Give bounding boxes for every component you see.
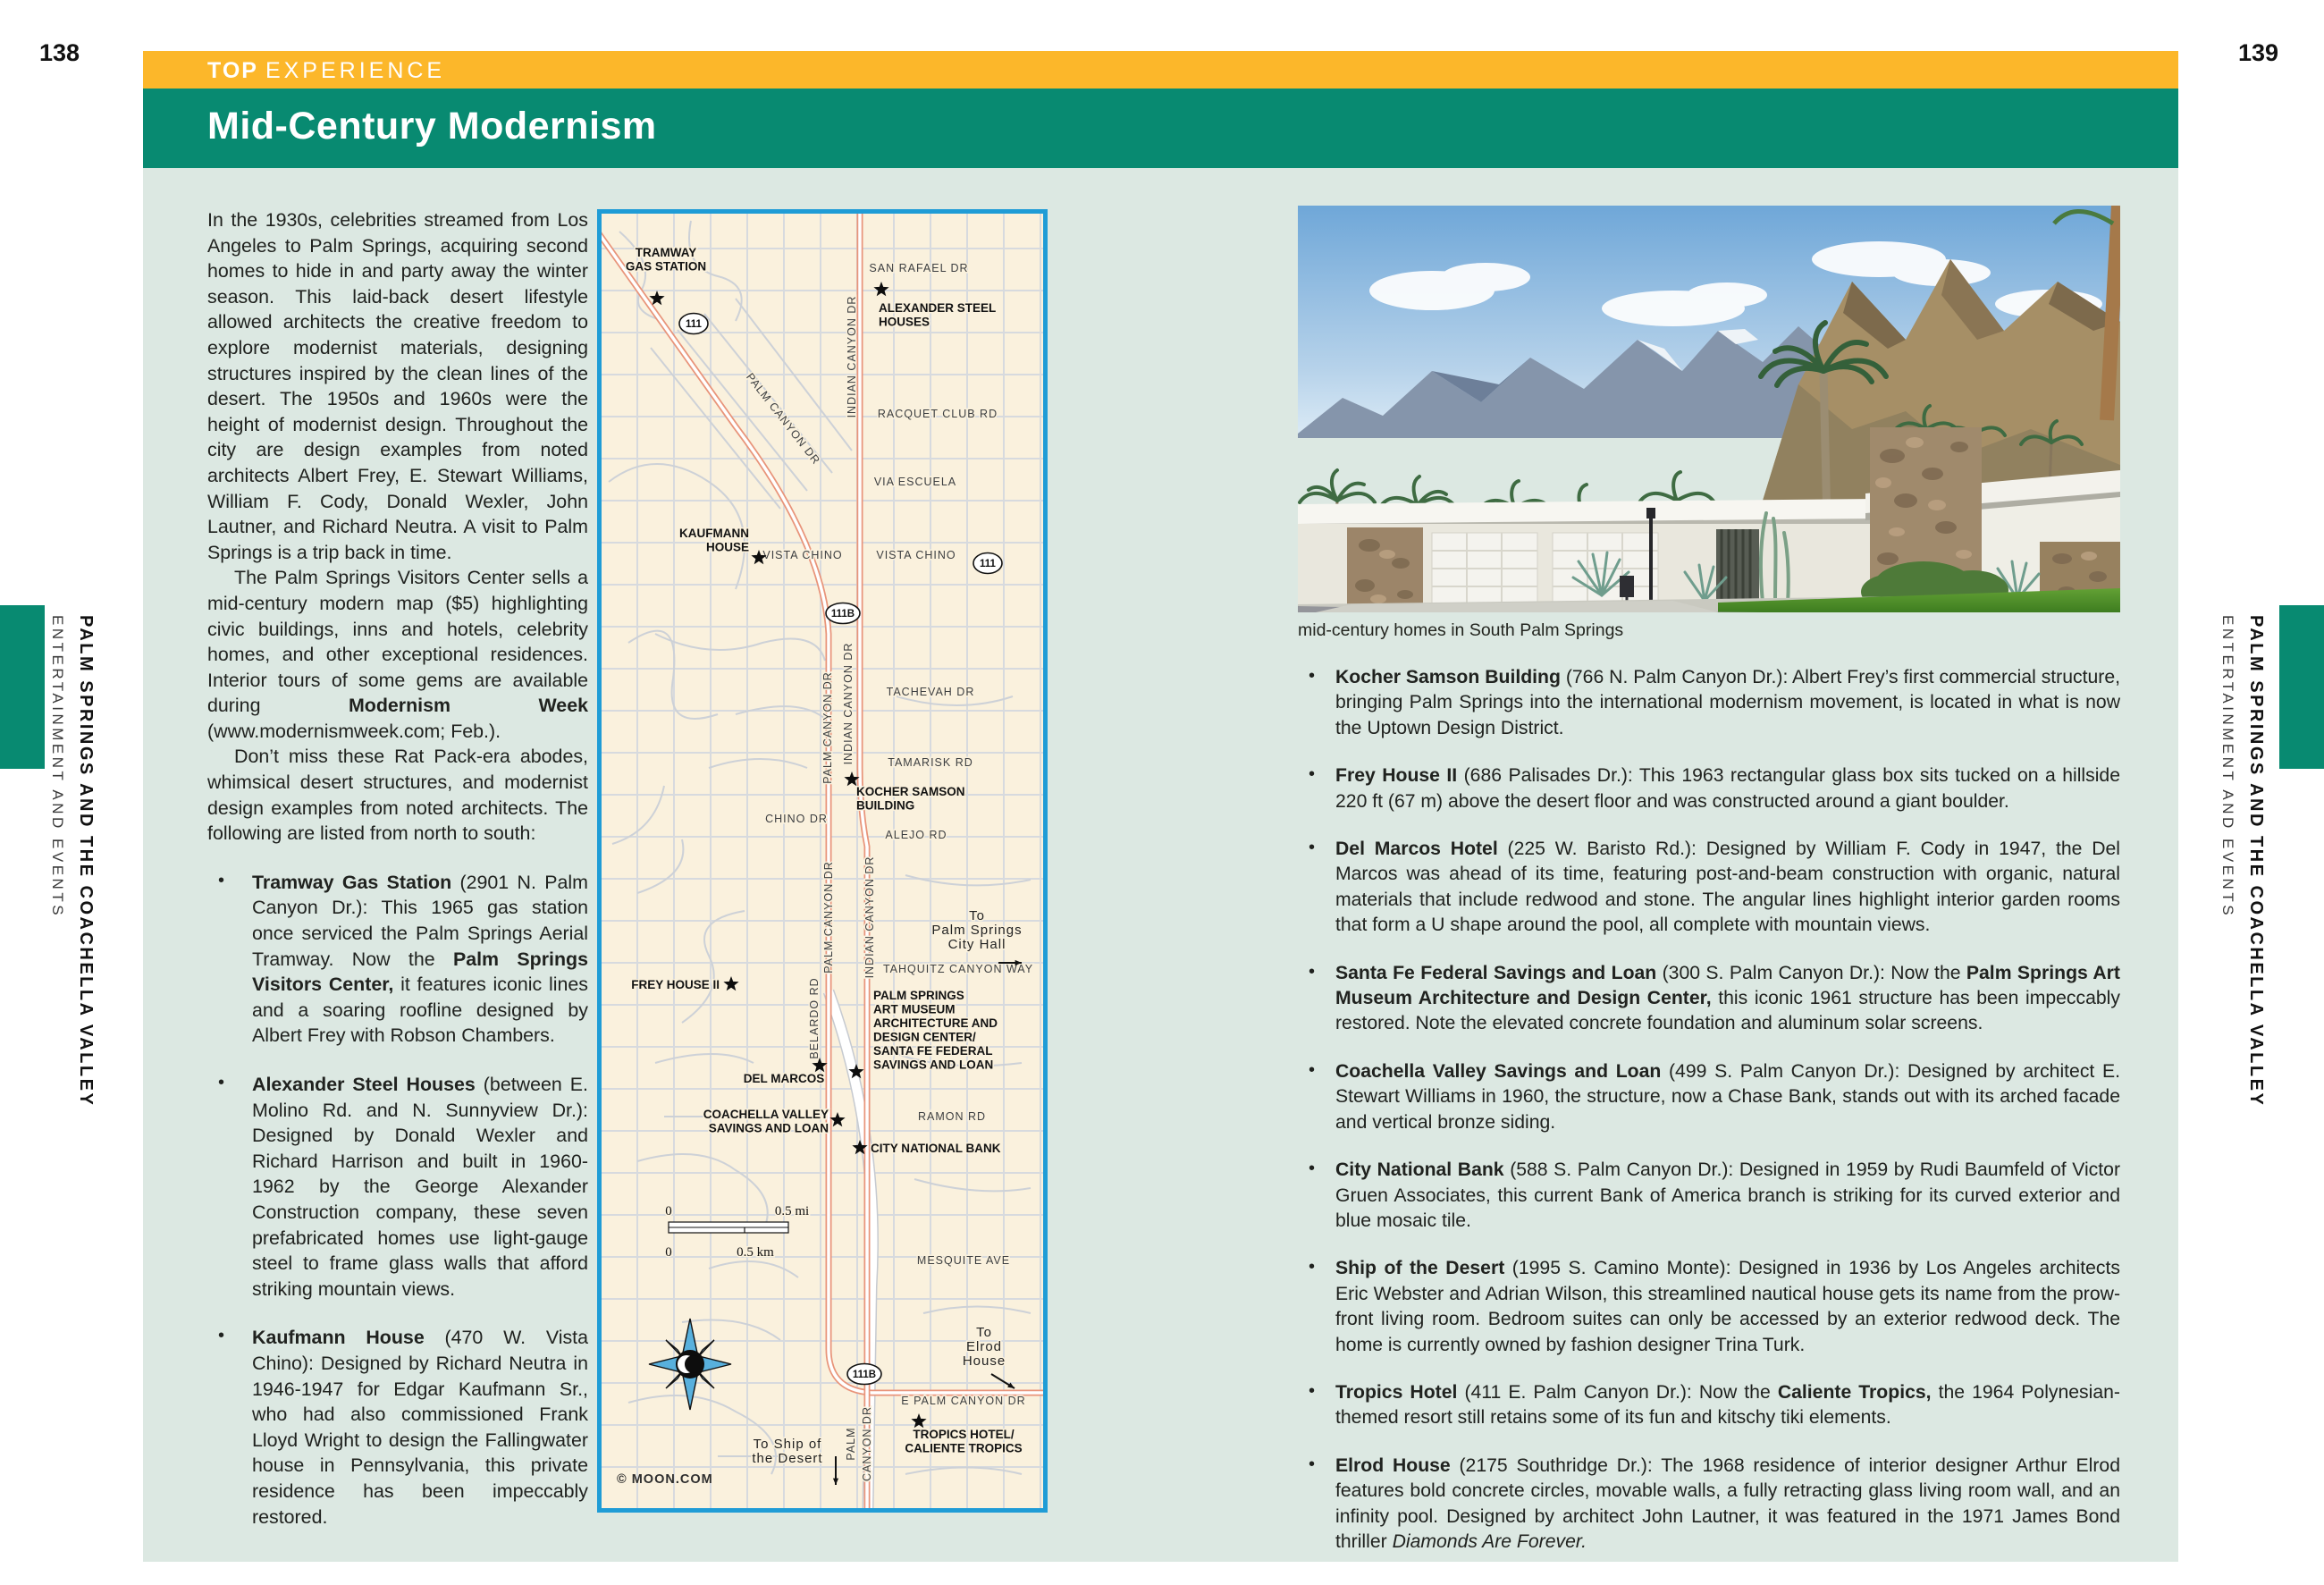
svg-text:HOUSE: HOUSE	[706, 541, 749, 554]
svg-text:GAS STATION: GAS STATION	[626, 260, 706, 274]
intro-paragraph: In the 1930s, celebrities streamed from …	[207, 207, 588, 565]
svg-text:House: House	[963, 1353, 1006, 1369]
list-item-text: Ship of the Desert (1995 S. Camino Monte…	[1335, 1256, 2120, 1358]
left-text-column: In the 1930s, celebrities streamed from …	[207, 207, 588, 1553]
poi-star-icon	[873, 282, 888, 296]
bullet-icon: •	[218, 868, 224, 894]
bullet-icon: •	[1309, 1378, 1315, 1404]
scale-bar	[669, 1222, 788, 1233]
svg-text:TAHQUITZ CANYON WAY: TAHQUITZ CANYON WAY	[883, 963, 1033, 975]
svg-text:DESIGN CENTER/: DESIGN CENTER/	[873, 1031, 976, 1044]
photo-illustration	[1298, 206, 2120, 612]
svg-text:INDIAN CANYON DR: INDIAN CANYON DR	[846, 296, 858, 418]
list-item-text: Tramway Gas Station (2901 N. Palm Canyon…	[252, 870, 588, 1049]
list-item-text: Kocher Samson Building (766 N. Palm Cany…	[1335, 665, 2120, 741]
right-tab-section-label: ENTERTAINMENT AND EVENTS	[2219, 615, 2236, 918]
list-item-text: Del Marcos Hotel (225 W. Baristo Rd.): D…	[1335, 837, 2120, 939]
left-bullet-list: •Tramway Gas Station (2901 N. Palm Canyo…	[207, 870, 588, 1530]
svg-text:CHINO DR: CHINO DR	[765, 813, 828, 825]
list-item: •Tropics Hotel (411 E. Palm Canyon Dr.):…	[1298, 1380, 2120, 1431]
map-canvas: 00.5 mi00.5 km SAN RAFAEL DRRACQUET CLUB…	[602, 214, 1043, 1508]
svg-text:CITY NATIONAL BANK: CITY NATIONAL BANK	[871, 1142, 1001, 1155]
svg-text:BELARDO RD: BELARDO RD	[808, 977, 821, 1058]
list-item: •Tramway Gas Station (2901 N. Palm Canyo…	[207, 870, 588, 1049]
poi-labels: TRAMWAYGAS STATIONALEXANDER STEELHOUSESK…	[626, 246, 1023, 1455]
svg-text:DEL MARCOS: DEL MARCOS	[744, 1072, 825, 1085]
kicker-bold: TOP	[207, 58, 258, 83]
bullet-icon: •	[1309, 835, 1315, 860]
svg-text:PALM CANYON DR: PALM CANYON DR	[822, 861, 835, 974]
bullet-icon: •	[1309, 1156, 1315, 1181]
photo-caption: mid-century homes in South Palm Springs	[1298, 620, 1623, 641]
list-item-text: City National Bank (588 S. Palm Canyon D…	[1335, 1158, 2120, 1234]
svg-text:ALEJO RD: ALEJO RD	[885, 829, 947, 841]
arrow-icon	[833, 1479, 838, 1485]
svg-text:Palm Springs: Palm Springs	[931, 923, 1022, 938]
svg-text:TRAMWAY: TRAMWAY	[636, 246, 697, 259]
svg-text:INDIAN CANYON DR: INDIAN CANYON DR	[863, 856, 876, 979]
page-number-left: 138	[39, 39, 80, 67]
svg-text:0: 0	[665, 1245, 672, 1260]
svg-text:SANTA FE FEDERAL: SANTA FE FEDERAL	[873, 1044, 993, 1058]
left-tab-section-label: ENTERTAINMENT AND EVENTS	[48, 615, 66, 918]
street-labels: SAN RAFAEL DRRACQUET CLUB RDVIA ESCUELAV…	[744, 262, 1033, 1481]
left-tab-marker	[0, 605, 45, 769]
svg-text:SAVINGS AND LOAN: SAVINGS AND LOAN	[873, 1058, 993, 1072]
svg-text:To: To	[969, 908, 985, 923]
svg-text:To Ship of: To Ship of	[754, 1437, 822, 1452]
svg-text:ALEXANDER STEEL: ALEXANDER STEEL	[879, 301, 996, 315]
svg-text:SAN RAFAEL DR: SAN RAFAEL DR	[869, 262, 968, 274]
poi-star-icon	[723, 976, 738, 991]
page-number-right: 139	[2238, 39, 2278, 67]
bullet-icon: •	[1309, 762, 1315, 787]
svg-text:City Hall: City Hall	[948, 937, 1006, 952]
poi-star-icon	[911, 1413, 926, 1428]
svg-text:0: 0	[665, 1204, 672, 1218]
svg-text:RACQUET CLUB RD: RACQUET CLUB RD	[878, 408, 998, 420]
svg-text:SAVINGS AND LOAN: SAVINGS AND LOAN	[709, 1122, 829, 1135]
top-experience-band: TOPEXPERIENCE	[143, 51, 2178, 89]
svg-text:PALM: PALM	[845, 1427, 857, 1460]
content-area: In the 1930s, celebrities streamed from …	[143, 168, 2178, 1562]
svg-text:0.5 km: 0.5 km	[737, 1245, 774, 1260]
svg-text:TROPICS HOTEL/: TROPICS HOTEL/	[913, 1428, 1015, 1441]
bullet-icon: •	[1309, 1254, 1315, 1279]
svg-text:Elrod: Elrod	[966, 1339, 1002, 1354]
right-text-column: •Kocher Samson Building (766 N. Palm Can…	[1298, 665, 2120, 1577]
svg-text:111: 111	[980, 559, 997, 569]
svg-text:CANYON DR: CANYON DR	[861, 1406, 873, 1481]
svg-text:VISTA CHINO: VISTA CHINO	[876, 549, 956, 561]
bullet-icon: •	[1309, 663, 1315, 688]
svg-text:INDIAN CANYON DR: INDIAN CANYON DR	[842, 643, 855, 765]
list-item: •Elrod House (2175 Southridge Dr.): The …	[1298, 1454, 2120, 1555]
svg-text:MESQUITE AVE: MESQUITE AVE	[917, 1254, 1010, 1267]
map-copyright: © MOON.COM	[617, 1472, 713, 1487]
bullet-icon: •	[1309, 959, 1315, 984]
svg-text:VIA ESCUELA: VIA ESCUELA	[874, 476, 956, 488]
photo-midcentury-homes	[1298, 206, 2120, 612]
list-item-text: Alexander Steel Houses (between E. Molin…	[252, 1072, 588, 1302]
list-item-text: Santa Fe Federal Savings and Loan (300 S…	[1335, 961, 2120, 1037]
bullet-icon: •	[1309, 1058, 1315, 1083]
svg-text:E PALM CANYON DR: E PALM CANYON DR	[901, 1395, 1025, 1407]
list-item: •Coachella Valley Savings and Loan (499 …	[1298, 1059, 2120, 1135]
svg-text:the Desert: the Desert	[752, 1451, 822, 1466]
bullet-icon: •	[218, 1323, 224, 1349]
kicker: TOPEXPERIENCE	[207, 58, 445, 84]
palm-springs-map: 00.5 mi00.5 km SAN RAFAEL DRRACQUET CLUB…	[597, 209, 1048, 1513]
svg-text:PALM SPRINGS: PALM SPRINGS	[873, 989, 964, 1002]
intro-paragraph: The Palm Springs Visitors Center sells a…	[207, 565, 588, 744]
svg-text:PALM CANYON DR: PALM CANYON DR	[821, 671, 834, 784]
svg-text:CALIENTE TROPICS: CALIENTE TROPICS	[905, 1442, 1022, 1455]
title-band: Mid-Century Modernism	[143, 89, 2178, 168]
svg-text:111B: 111B	[853, 1370, 876, 1380]
svg-text:FREY HOUSE II: FREY HOUSE II	[631, 978, 720, 991]
list-item: •Ship of the Desert (1995 S. Camino Mont…	[1298, 1256, 2120, 1358]
bullet-icon: •	[218, 1070, 224, 1096]
poi-star-icon	[829, 1112, 845, 1126]
svg-text:BUILDING: BUILDING	[856, 799, 914, 813]
svg-text:KAUFMANN: KAUFMANN	[679, 527, 749, 540]
right-tab-chapter-label: PALM SPRINGS AND THE COACHELLA VALLEY	[2245, 615, 2266, 1107]
svg-text:ART MUSEUM: ART MUSEUM	[873, 1003, 956, 1016]
kicker-rest: EXPERIENCE	[265, 58, 445, 83]
svg-text:111B: 111B	[831, 609, 855, 620]
list-item-text: Coachella Valley Savings and Loan (499 S…	[1335, 1059, 2120, 1135]
list-item: •Kocher Samson Building (766 N. Palm Can…	[1298, 665, 2120, 741]
svg-text:KOCHER SAMSON: KOCHER SAMSON	[856, 785, 965, 798]
svg-text:111: 111	[686, 319, 703, 330]
list-item-text: Kaufmann House (470 W. Vista Chino): Des…	[252, 1325, 588, 1530]
list-item: •Del Marcos Hotel (225 W. Baristo Rd.): …	[1298, 837, 2120, 939]
svg-text:TAMARISK RD: TAMARISK RD	[888, 756, 973, 769]
list-item: •Kaufmann House (470 W. Vista Chino): De…	[207, 1325, 588, 1530]
page-title: Mid-Century Modernism	[207, 105, 657, 148]
list-item-text: Tropics Hotel (411 E. Palm Canyon Dr.): …	[1335, 1380, 2120, 1431]
list-item: •Santa Fe Federal Savings and Loan (300 …	[1298, 961, 2120, 1037]
intro-paragraph: Don’t miss these Rat Pack-era abodes, wh…	[207, 744, 588, 846]
list-item: •Alexander Steel Houses (between E. Moli…	[207, 1072, 588, 1302]
list-item-text: Elrod House (2175 Southridge Dr.): The 1…	[1335, 1454, 2120, 1555]
list-item-text: Frey House II (686 Palisades Dr.): This …	[1335, 763, 2120, 814]
svg-text:RAMON RD: RAMON RD	[918, 1110, 986, 1123]
svg-text:ARCHITECTURE AND: ARCHITECTURE AND	[873, 1016, 998, 1030]
list-item: •Frey House II (686 Palisades Dr.): This…	[1298, 763, 2120, 814]
svg-text:VISTA CHINO: VISTA CHINO	[762, 549, 842, 561]
list-item: •City National Bank (588 S. Palm Canyon …	[1298, 1158, 2120, 1234]
svg-text:0.5 mi: 0.5 mi	[775, 1204, 809, 1218]
svg-text:HOUSES: HOUSES	[879, 316, 930, 329]
right-tab-marker	[2279, 605, 2324, 769]
svg-text:To: To	[976, 1325, 992, 1340]
right-bullet-list: •Kocher Samson Building (766 N. Palm Can…	[1298, 665, 2120, 1555]
svg-text:TACHEVAH DR: TACHEVAH DR	[887, 686, 975, 698]
book-spread: 138 139 TOPEXPERIENCE Mid-Century Modern…	[0, 0, 2324, 1585]
svg-text:COACHELLA VALLEY: COACHELLA VALLEY	[703, 1108, 829, 1121]
bullet-icon: •	[1309, 1452, 1315, 1477]
left-tab-chapter-label: PALM SPRINGS AND THE COACHELLA VALLEY	[75, 615, 96, 1107]
